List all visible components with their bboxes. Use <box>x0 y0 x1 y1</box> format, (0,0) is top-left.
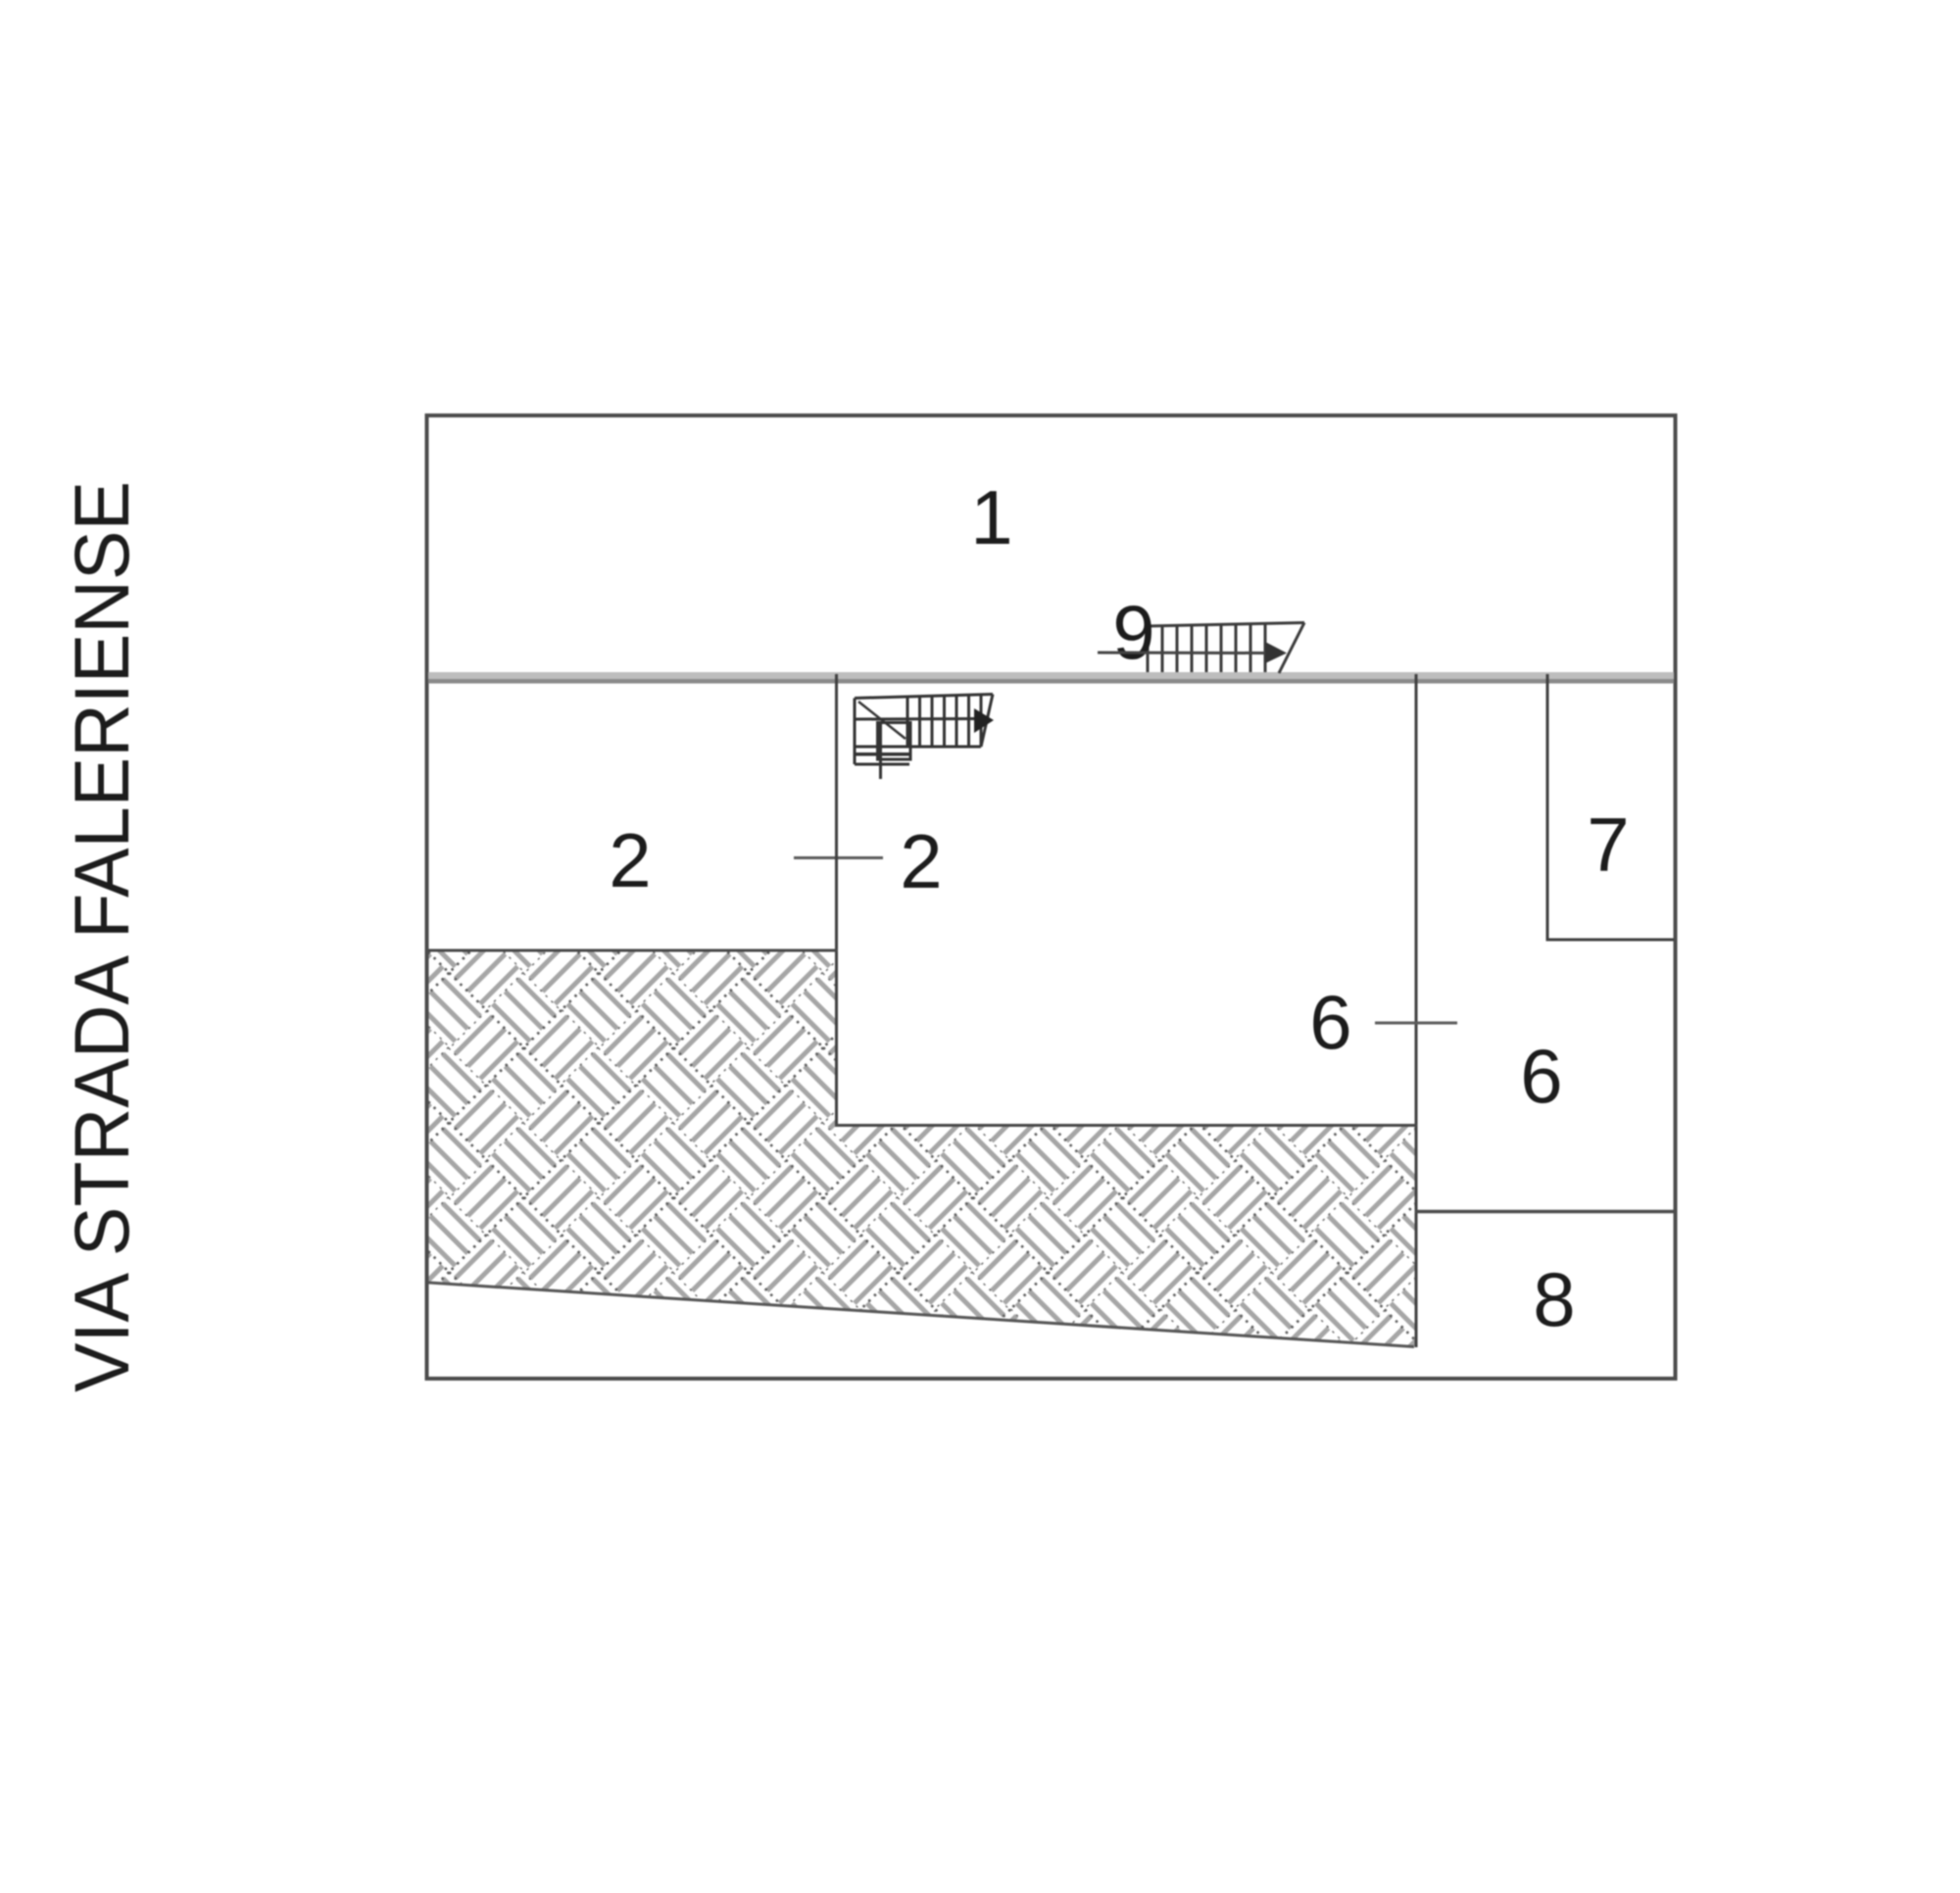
svg-text:9: 9 <box>1112 589 1154 675</box>
svg-text:8: 8 <box>1533 1256 1575 1342</box>
svg-text:2: 2 <box>609 817 651 903</box>
svg-text:6: 6 <box>1520 1033 1562 1119</box>
svg-text:6: 6 <box>1309 979 1351 1065</box>
svg-text:2: 2 <box>900 818 942 904</box>
svg-text:1: 1 <box>970 474 1012 560</box>
svg-text:VIA STRADA FALERIENSE: VIA STRADA FALERIENSE <box>58 481 145 1392</box>
svg-text:7: 7 <box>1587 801 1629 888</box>
